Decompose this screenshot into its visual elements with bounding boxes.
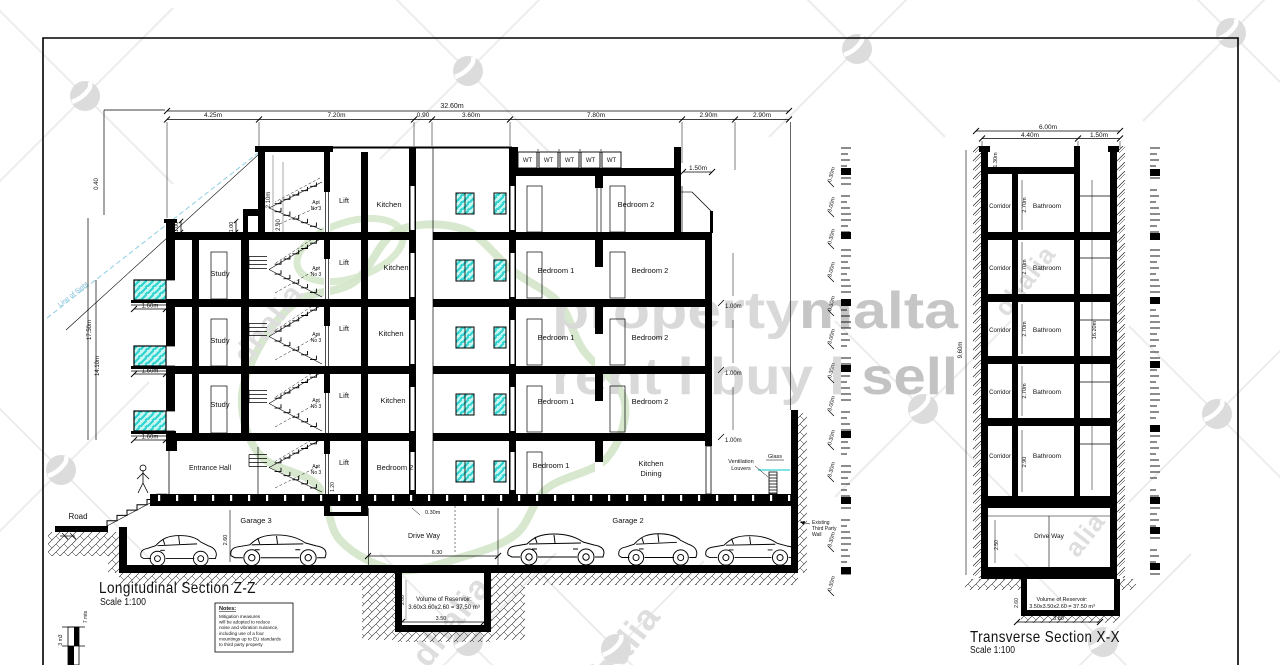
svg-text:WT: WT [607, 158, 617, 164]
svg-text:0.40: 0.40 [94, 178, 100, 190]
svg-text:Bedroom 2: Bedroom 2 [632, 266, 669, 275]
svg-text:1.00m: 1.00m [725, 304, 742, 310]
svg-text:Bathroom: Bathroom [1033, 453, 1061, 460]
svg-text:Bedroom 1: Bedroom 1 [538, 397, 575, 406]
svg-text:Kitchen: Kitchen [376, 200, 401, 209]
svg-text:Study: Study [210, 336, 229, 345]
svg-text:will be adopted to reduce: will be adopted to reduce [219, 620, 271, 625]
svg-text:6.30: 6.30 [432, 550, 443, 556]
svg-text:Garage 3: Garage 3 [240, 516, 271, 525]
svg-text:Lift: Lift [339, 196, 350, 205]
svg-text:Drive Way: Drive Way [1034, 533, 1064, 540]
svg-text:1.00m: 1.00m [725, 371, 742, 377]
svg-text:WT: WT [565, 158, 575, 164]
svg-text:Drive Way: Drive Way [408, 533, 441, 540]
svg-text:Corridor: Corridor [989, 390, 1011, 396]
svg-text:Ventilation: Ventilation [728, 459, 753, 465]
svg-text:Bedroom 2: Bedroom 2 [632, 397, 669, 406]
svg-text:14.10m: 14.10m [95, 356, 101, 376]
svg-text:noise and vibration nuisance,: noise and vibration nuisance, [219, 625, 279, 630]
svg-text:Mitigation measures: Mitigation measures [219, 614, 261, 619]
svg-text:WT: WT [586, 158, 596, 164]
svg-text:1.50m: 1.50m [689, 165, 707, 172]
svg-text:2.60: 2.60 [1014, 598, 1020, 608]
svg-text:Volume of Reservoir:: Volume of Reservoir: [1036, 597, 1088, 603]
svg-text:propertymalta: propertymalta [552, 282, 959, 340]
svg-text:Entrance Hall: Entrance Hall [189, 465, 231, 472]
svg-text:1.00m: 1.00m [725, 438, 742, 444]
svg-text:3.60m: 3.60m [462, 112, 480, 119]
svg-text:2.60: 2.60 [223, 535, 229, 546]
svg-text:Corridor: Corridor [989, 266, 1011, 272]
svg-text:Bathroom: Bathroom [1033, 203, 1061, 210]
svg-text:Lift: Lift [339, 324, 350, 333]
svg-text:No 3: No 3 [311, 338, 322, 344]
svg-text:1.00: 1.00 [174, 222, 180, 233]
svg-text:Kitchen: Kitchen [638, 459, 663, 468]
svg-text:rent l buy l sell: rent l buy l sell [552, 348, 958, 406]
svg-text:Notes:: Notes: [219, 606, 236, 612]
svg-text:2.90m: 2.90m [699, 112, 717, 119]
svg-text:Lift: Lift [339, 458, 350, 467]
svg-text:1.00: 1.00 [229, 222, 235, 233]
svg-text:6.00m: 6.00m [1039, 124, 1057, 131]
svg-text:1.60m: 1.60m [142, 435, 159, 441]
svg-text:3.50: 3.50 [436, 616, 447, 622]
svg-text:3 m3: 3 m3 [58, 634, 64, 645]
svg-text:Study: Study [210, 269, 229, 278]
svg-text:16.20m: 16.20m [1092, 320, 1098, 339]
svg-text:Bathroom: Bathroom [1033, 389, 1061, 396]
svg-text:1.60m: 1.60m [142, 369, 159, 375]
svg-text:No 3: No 3 [311, 206, 322, 212]
svg-text:Corridor: Corridor [989, 454, 1011, 460]
svg-text:Bedroom 1: Bedroom 1 [538, 266, 575, 275]
svg-text:Transverse Section X-X: Transverse Section X-X [970, 629, 1120, 646]
svg-text:7.20m: 7.20m [327, 112, 345, 119]
svg-text:2.70m: 2.70m [1022, 259, 1028, 275]
svg-text:9.60m: 9.60m [958, 342, 964, 359]
svg-text:Lift: Lift [339, 391, 350, 400]
svg-text:3.80: 3.80 [1053, 616, 1064, 622]
svg-text:WT: WT [523, 158, 533, 164]
svg-text:Garage 2: Garage 2 [612, 516, 643, 525]
svg-text:2.10m: 2.10m [266, 192, 272, 209]
svg-text:No 3: No 3 [311, 272, 322, 278]
svg-text:Bathroom: Bathroom [1033, 327, 1061, 334]
svg-text:Road: Road [68, 512, 87, 521]
svg-text:Bedroom 1: Bedroom 1 [533, 461, 570, 470]
svg-text:Kitchen: Kitchen [380, 396, 405, 405]
svg-text:2.70m: 2.70m [1022, 197, 1028, 213]
svg-text:Longitudinal Section Z-Z: Longitudinal Section Z-Z [99, 580, 256, 597]
svg-text:Bedroom 2: Bedroom 2 [618, 200, 655, 209]
svg-text:7 mts: 7 mts [83, 610, 89, 623]
svg-text:3.50x3.50x2.60 = 37.50 m³: 3.50x3.50x2.60 = 37.50 m³ [1029, 604, 1095, 610]
svg-text:Wall: Wall [812, 532, 822, 538]
svg-text:Bedroom 1: Bedroom 1 [538, 333, 575, 342]
svg-text:WT: WT [544, 158, 554, 164]
svg-text:Volume of Reservoir:: Volume of Reservoir: [416, 597, 472, 603]
svg-text:0.30m: 0.30m [425, 510, 441, 516]
svg-text:1.50m: 1.50m [1090, 132, 1108, 139]
svg-text:2.90m: 2.90m [753, 112, 771, 119]
svg-text:Kitchen: Kitchen [378, 329, 403, 338]
svg-text:Lift: Lift [339, 258, 350, 267]
svg-text:1.60m: 1.60m [142, 304, 159, 310]
svg-text:Corridor: Corridor [989, 328, 1011, 334]
svg-text:No 3: No 3 [311, 470, 322, 476]
svg-text:to third party property: to third party property [219, 642, 263, 647]
svg-text:Dining: Dining [640, 469, 661, 478]
svg-text:4.40m: 4.40m [1021, 132, 1039, 139]
svg-text:3.60x3.60x2.60 = 37.50 m³: 3.60x3.60x2.60 = 37.50 m³ [408, 605, 480, 611]
svg-text:2.50: 2.50 [994, 540, 1000, 550]
svg-text:Corridor: Corridor [989, 204, 1011, 210]
svg-text:Bathroom: Bathroom [1033, 265, 1061, 272]
svg-text:2.90: 2.90 [1022, 457, 1028, 468]
svg-text:Study: Study [210, 400, 229, 409]
svg-text:1.20: 1.20 [330, 482, 336, 492]
svg-text:17.50m: 17.50m [87, 320, 93, 340]
svg-text:32.60m: 32.60m [440, 103, 464, 110]
svg-text:Glass: Glass [768, 454, 782, 460]
svg-text:Bedroom 2: Bedroom 2 [632, 333, 669, 342]
svg-text:Scale 1:100: Scale 1:100 [970, 645, 1015, 656]
svg-text:2.70m: 2.70m [1022, 383, 1028, 399]
svg-text:1.30m: 1.30m [993, 152, 999, 168]
svg-text:4.25m: 4.25m [204, 112, 222, 119]
svg-text:0.90: 0.90 [417, 112, 430, 119]
svg-text:No 3: No 3 [311, 404, 322, 410]
svg-text:Scale 1:100: Scale 1:100 [100, 597, 146, 608]
svg-text:2.90: 2.90 [276, 219, 282, 231]
svg-text:2.60: 2.60 [400, 595, 406, 605]
svg-text:Kitchen: Kitchen [383, 263, 408, 272]
svg-text:Louvers: Louvers [731, 466, 751, 472]
svg-text:including use of a four: including use of a four [219, 631, 264, 636]
svg-text:2.70m: 2.70m [1022, 321, 1028, 337]
svg-text:Bedroom 2: Bedroom 2 [377, 463, 414, 472]
svg-text:7.80m: 7.80m [587, 112, 605, 119]
svg-text:mountings up to EU standards: mountings up to EU standards [219, 636, 281, 641]
